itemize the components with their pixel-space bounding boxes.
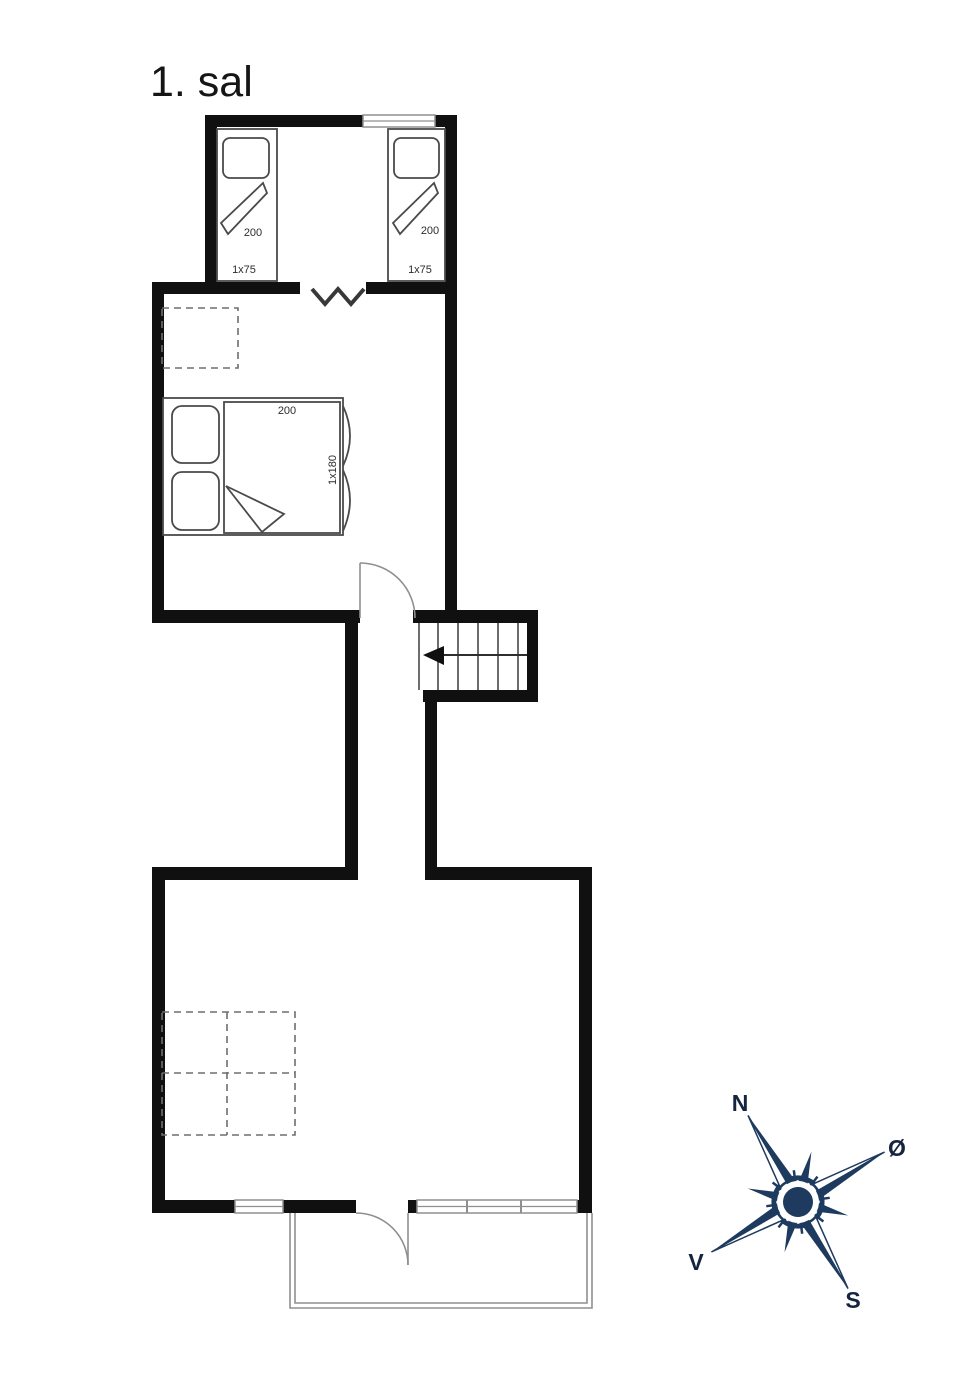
stairs-direction-arrow-icon [423, 646, 444, 665]
compass-star [661, 1065, 934, 1338]
wall-lower-bottom-corner [577, 1200, 592, 1213]
wall-lower-left [152, 867, 165, 1213]
wall-opening-zigzag-icon [312, 289, 364, 304]
window-top [363, 115, 435, 127]
wall-master-right [445, 282, 457, 623]
balcony [290, 1213, 592, 1308]
compass-east-label: Ø [888, 1135, 906, 1161]
wall-corridor-right [425, 700, 437, 880]
pillow [172, 472, 219, 530]
single-bed-left: 200 1x75 [217, 129, 277, 281]
single-bed-right: 200 1x75 [388, 129, 445, 281]
wall-upper-top-left [205, 115, 363, 127]
compass-west-label: V [688, 1249, 704, 1275]
wall-corridor-left [345, 610, 358, 880]
wall-upper-left [205, 115, 217, 294]
compass-north-label: N [732, 1090, 749, 1116]
wall-lower-top-left [152, 867, 358, 880]
pillow [223, 138, 269, 178]
living-room [162, 1012, 295, 1135]
bed-length-label: 200 [244, 227, 262, 239]
window-bottom-left [235, 1200, 283, 1213]
bed-length-label: 200 [278, 405, 296, 417]
wall-shared-left [152, 282, 300, 294]
bed-size-label: 1x75 [232, 264, 256, 276]
floor-title: 1. sal [150, 58, 253, 106]
floor-plan-drawing: 1. sal [0, 0, 960, 1385]
wall-lower-top-right [425, 867, 592, 880]
compass-south-label: S [845, 1287, 860, 1313]
wall-stairs-bottom [423, 690, 538, 702]
window-bottom-right [417, 1200, 577, 1213]
wall-stairs-right [527, 610, 538, 702]
bed-size-label: 1x75 [408, 264, 432, 276]
bed-size-label: 1x180 [327, 455, 339, 485]
door-balcony [356, 1213, 408, 1265]
wall-lower-bottom-post [408, 1200, 417, 1213]
wall-master-bottom [152, 610, 360, 623]
bed-length-label: 200 [421, 225, 439, 237]
wall-lower-bottom-2 [283, 1200, 356, 1213]
wall-lower-bottom-1 [152, 1200, 235, 1213]
double-bed: 200 1x180 [163, 398, 350, 535]
wall-upper-right [445, 115, 457, 294]
skylight-dashed-grid [162, 1012, 295, 1135]
wall-stairs-top [413, 610, 538, 623]
staircase [419, 623, 527, 690]
wall-shared-right [366, 282, 457, 294]
wall-lower-right [579, 867, 592, 1213]
pillow [394, 138, 439, 178]
skylight-dashed-outline [162, 308, 238, 368]
master-bedroom: 200 1x180 [162, 308, 415, 618]
headboard-cushions [343, 406, 350, 531]
door-master-bedroom [360, 563, 415, 618]
pillow [172, 406, 219, 463]
floor-plan-page: 1. sal [0, 0, 960, 1385]
upper-bedroom: 200 1x75 200 1x75 [217, 129, 445, 281]
compass-rose-icon: N Ø V S [661, 1065, 934, 1338]
